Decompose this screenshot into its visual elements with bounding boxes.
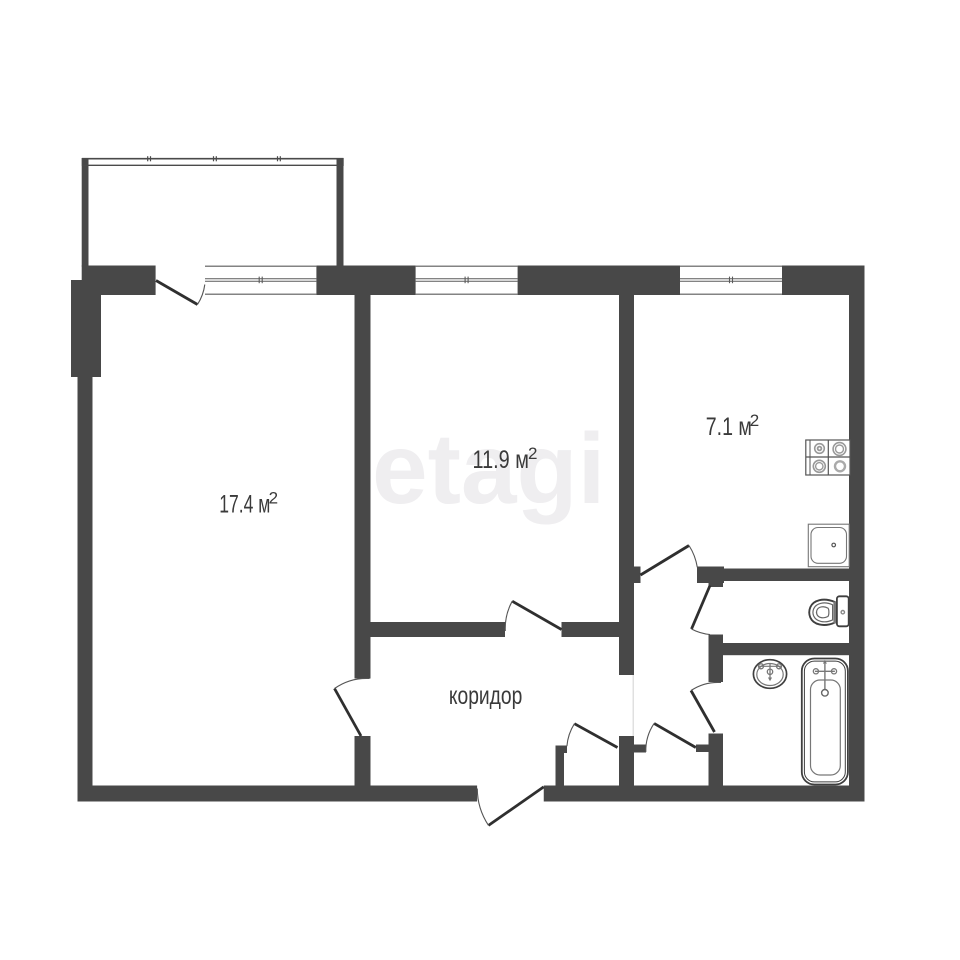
svg-text:11.9 м: 11.9 м xyxy=(473,446,529,474)
svg-text:2: 2 xyxy=(750,411,759,430)
svg-text:2: 2 xyxy=(528,444,537,463)
svg-text:2: 2 xyxy=(269,488,278,507)
svg-text:17.4 м: 17.4 м xyxy=(219,489,270,518)
svg-text:коридор: коридор xyxy=(449,682,522,710)
svg-text:7.1 м: 7.1 м xyxy=(706,413,752,441)
